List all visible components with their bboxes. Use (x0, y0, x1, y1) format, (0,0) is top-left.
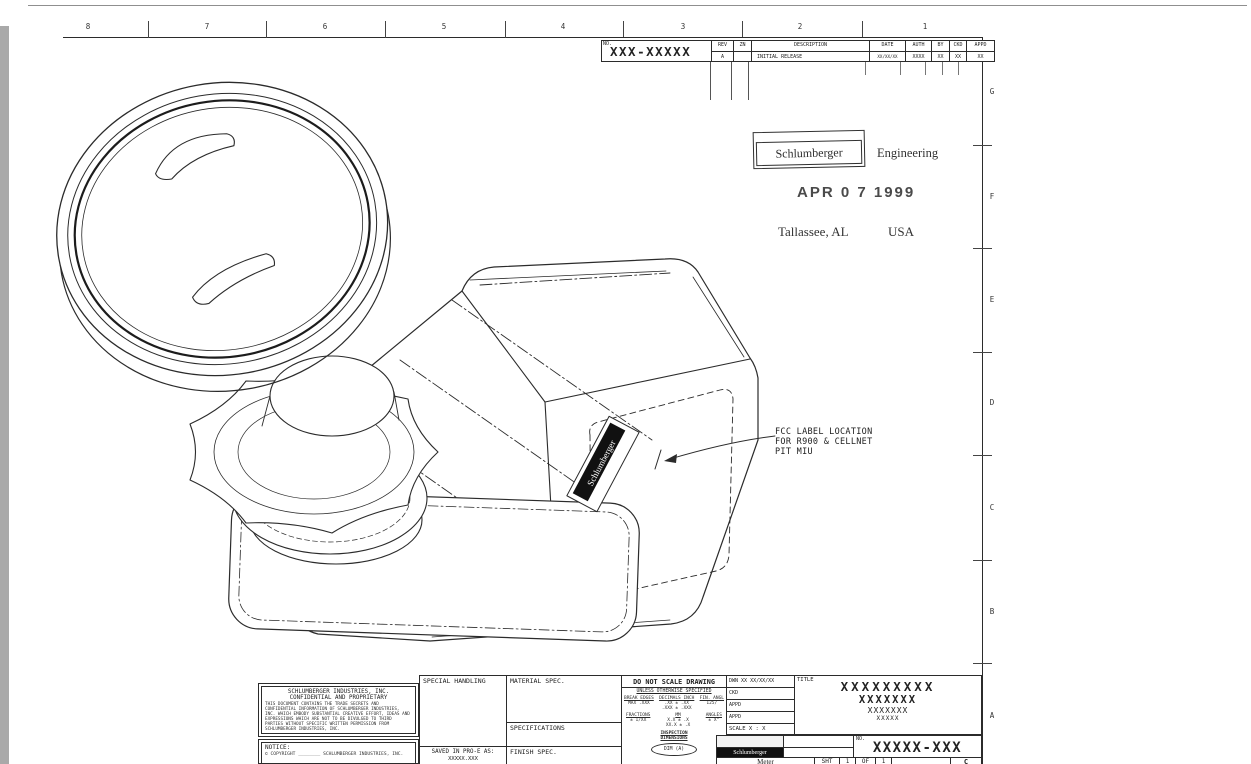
sheet-of-cell: OF (855, 757, 876, 764)
size-cell: C (950, 757, 982, 764)
title-lines: XXXXXXXXX XXXXXXX XXXXXXX XXXXX (795, 680, 981, 722)
tolerance-column: DO NOT SCALE DRAWING UNLESS OTHERWISE SP… (621, 675, 727, 764)
drawn-by-row: DWN XX XX/XX/XX (727, 676, 794, 688)
specifications-cell: SPECIFICATIONS (506, 722, 622, 747)
material-spec-label: MATERIAL SPEC. (507, 676, 621, 685)
dimensions-word: DIMENSIONS (622, 736, 726, 741)
tol-fractions-value: ± 1/XX (626, 718, 650, 723)
specifications-label: SPECIFICATIONS (507, 723, 621, 732)
copyright-line: © COPYRIGHT ________ SCHLUMBERGER INDUST… (262, 751, 415, 757)
unless-otherwise-label: UNLESS OTHERWISE SPECIFIED (622, 688, 726, 694)
notice-inner-box: NOTICE: © COPYRIGHT ________ SCHLUMBERGE… (261, 742, 416, 763)
confidential-body: THIS DOCUMENT CONTAINS THE TRADE SECRETS… (265, 703, 412, 732)
title-line-4: XXXXX (795, 715, 981, 722)
inspection-dimensions-label: INSPECTION DIMENSIONS (622, 731, 726, 741)
title-line-1: XXXXXXXXX (795, 680, 981, 694)
confidential-inner-box: SCHLUMBERGER INDUSTRIES, INC. CONFIDENTI… (261, 686, 416, 734)
tolerance-grid-row2: FRACTIONS ± 1/XX MM X.X ± .X XX.X ± .X A… (622, 712, 726, 729)
saved-as-label: SAVED IN PRO-E AS: (420, 749, 506, 755)
confidential-box: SCHLUMBERGER INDUSTRIES, INC. CONFIDENTI… (258, 683, 419, 737)
scanned-engineering-drawing: 8 7 6 5 4 3 2 1 G F E D C B A NO. XXX-XX… (0, 0, 1251, 764)
finish-spec-label: FINISH SPEC. (507, 747, 621, 756)
sheet-total-cell: 1 (875, 757, 892, 764)
tol-fin-angl-value: 125/ (700, 701, 724, 706)
special-handling-label: SPECIAL HANDLING (420, 676, 506, 685)
finish-spec-cell: FINISH SPEC. (506, 746, 622, 764)
title-cell: TITLE XXXXXXXXX XXXXXXX XXXXXXX XXXXX (794, 675, 982, 735)
drawing-number-box: NO. XXXXX-XXX (853, 735, 982, 758)
notice-box: NOTICE: © COPYRIGHT ________ SCHLUMBERGE… (258, 739, 419, 764)
drawing-no-label: NO. (856, 736, 865, 742)
dim-oval-tag: DIM (A) (651, 743, 697, 756)
material-spec-cell: MATERIAL SPEC. (506, 675, 622, 723)
approved-row-1: APPD (727, 700, 794, 712)
checked-by-row: CKD (727, 688, 794, 700)
sheet-filler-cell (891, 757, 951, 764)
title-line-2: XXXXXXX (795, 694, 981, 706)
tol-angles-value: ± X° (706, 718, 722, 723)
saved-as-cell: SAVED IN PRO-E AS: XXXXX.XXX (419, 746, 507, 764)
logo-bar-text: Schlumberger (733, 750, 767, 756)
tol-break-edges-value: MAX .XXX (624, 701, 654, 706)
special-handling-cell: SPECIAL HANDLING (419, 675, 507, 747)
device-line-drawing: Schlumberger (0, 0, 1000, 764)
tolerance-grid-row1: BREAK EDGES MAX .XXX DECIMALS INCH .XX ±… (622, 694, 726, 712)
confidential-subtitle: CONFIDENTIAL AND PROPRIETARY (262, 695, 415, 701)
saved-as-value: XXXXX.XXX (420, 756, 506, 762)
part-number: XXXXX-XXX (854, 740, 981, 756)
product-cell: Meter (716, 757, 815, 764)
approvals-column: DWN XX XX/XX/XX CKD APPD APPD SCALE X : … (726, 675, 795, 735)
do-not-scale-label: DO NOT SCALE DRAWING (622, 676, 726, 688)
notice-label: NOTICE: (262, 743, 415, 751)
title-label: TITLE (797, 677, 814, 683)
sheet-sht-cell: SHT (814, 757, 840, 764)
approved-row-2: APPD (727, 712, 794, 724)
dim-oval-text: DIM (A) (664, 747, 684, 752)
title-line-3: XXXXXXX (795, 706, 981, 715)
tol-mm-v2: XX.X ± .X (666, 723, 690, 728)
tol-decimals-v2: .XXX ± .XXX (659, 706, 694, 711)
sheet-num-cell: 1 (839, 757, 856, 764)
